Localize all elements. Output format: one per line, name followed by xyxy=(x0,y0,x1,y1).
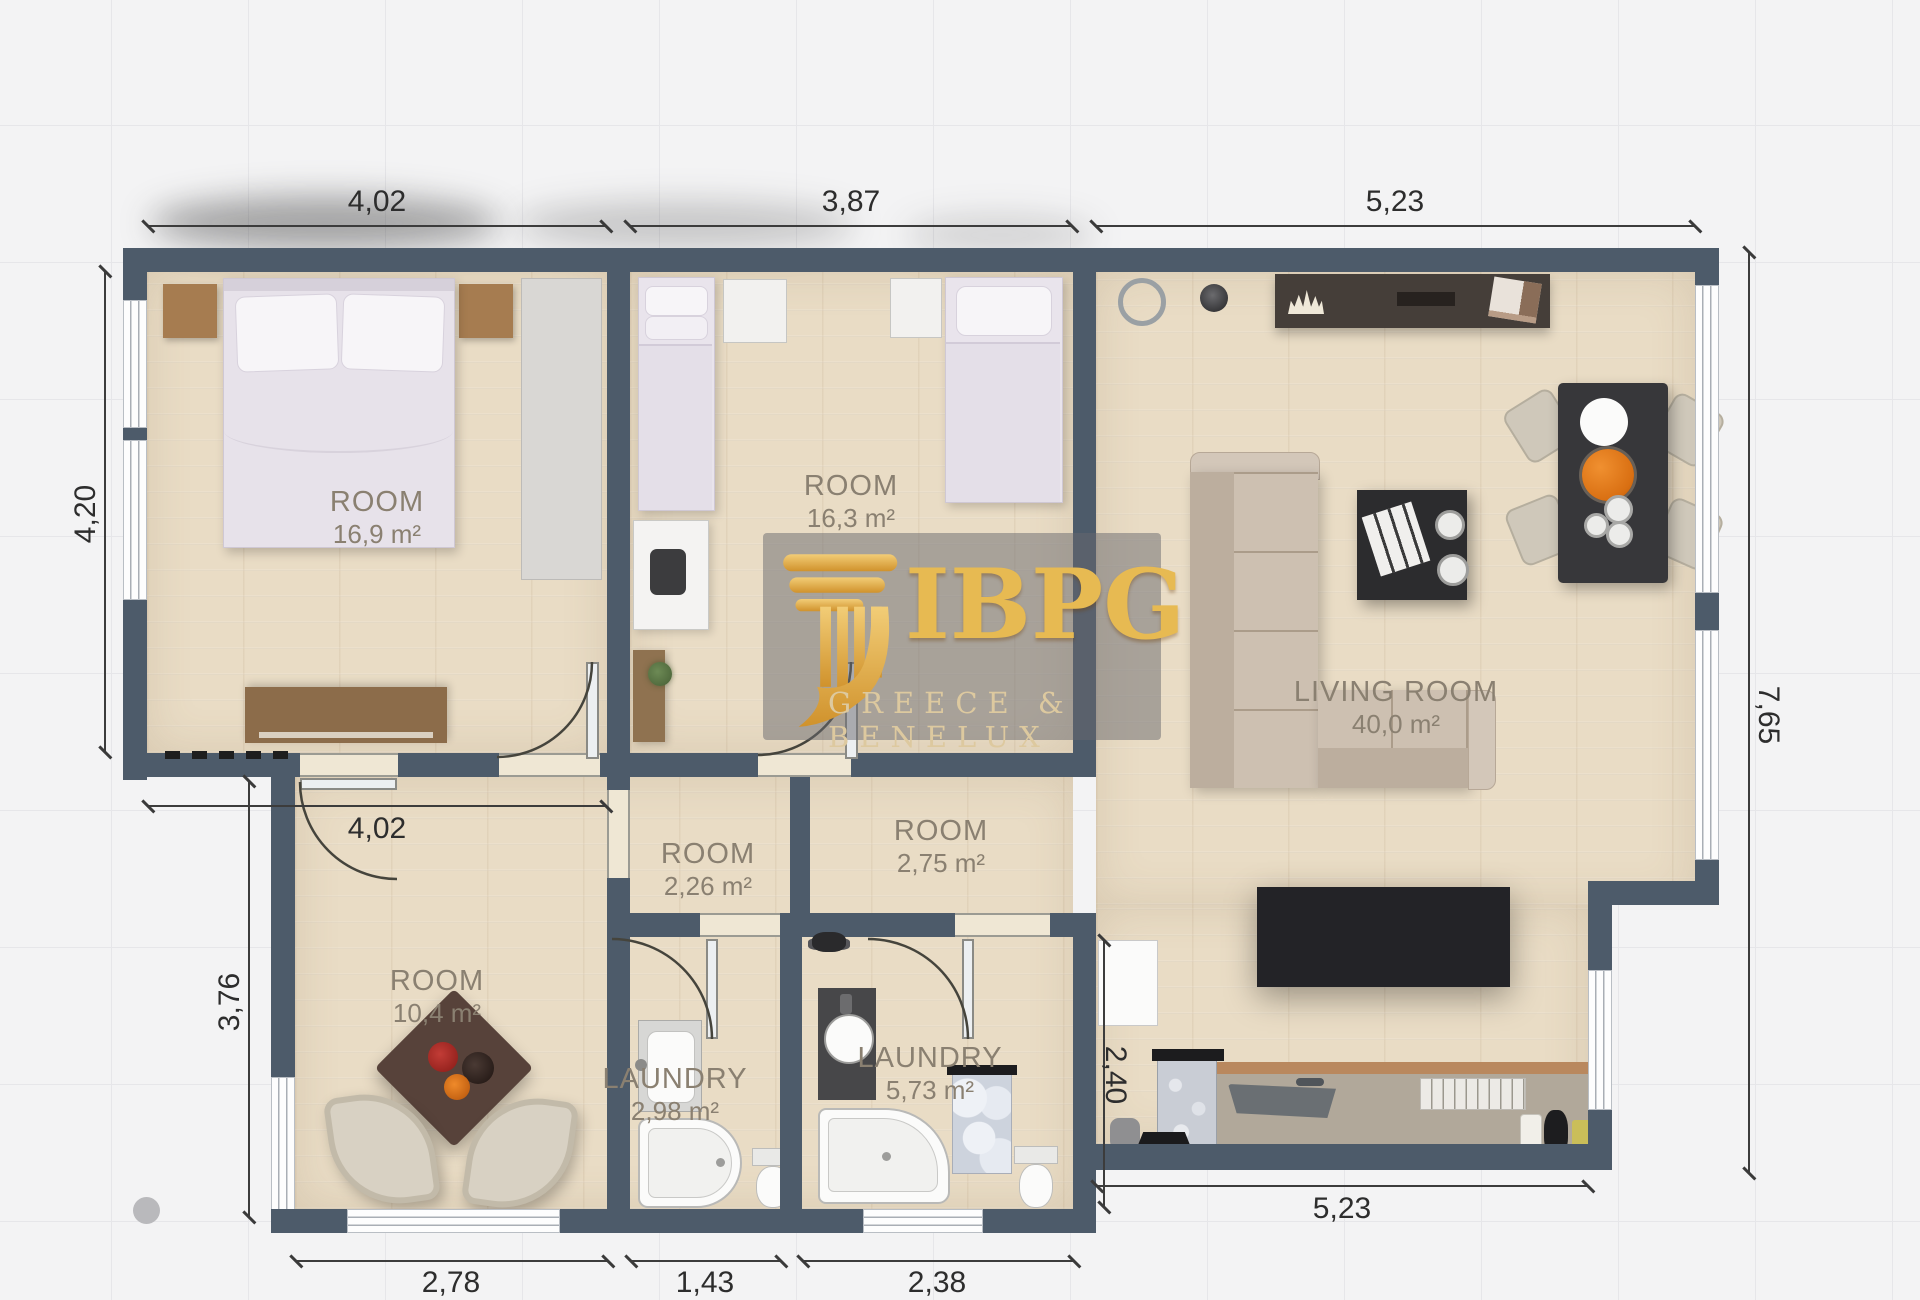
dimension-line xyxy=(630,225,1073,227)
room-label-living-room: LIVING ROOM 40,0 m² xyxy=(1286,676,1506,740)
room-label-sitting-room: ROOM 10,4 m² xyxy=(327,965,547,1029)
door-arc xyxy=(612,939,712,1039)
dimension-label: 7,65 xyxy=(1751,650,1785,780)
door-arc xyxy=(497,662,592,757)
dimension-line xyxy=(1748,253,1750,1174)
room-label-bedroom-1: ROOM 16,9 m² xyxy=(267,486,487,550)
dimension-label: 4,02 xyxy=(312,185,442,219)
room-name: ROOM xyxy=(598,838,818,871)
room-label-hall-small: ROOM 2,26 m² xyxy=(598,838,818,902)
dimension-line xyxy=(295,1260,607,1262)
room-name: LAUNDRY xyxy=(820,1042,1040,1075)
dimension-label: 4,20 xyxy=(69,449,103,579)
dimension-line xyxy=(147,805,607,807)
dimension-line xyxy=(1096,1185,1588,1187)
watermark-brand: IBPG xyxy=(905,548,1205,661)
dimension-line xyxy=(1096,225,1695,227)
dimension-line xyxy=(104,272,106,753)
dimension-label: 2,38 xyxy=(872,1266,1002,1300)
dimension-label: 3,76 xyxy=(213,937,247,1067)
room-area: 2,75 m² xyxy=(831,848,1051,879)
room-area: 2,98 m² xyxy=(565,1096,785,1127)
door-arc xyxy=(868,939,968,1039)
room-area: 2,26 m² xyxy=(598,871,818,902)
floor-plan-canvas: 4,02 3,87 5,23 4,20 3,76 7,65 4,02 2,40 … xyxy=(0,0,1920,1300)
dimension-label: 4,02 xyxy=(312,812,442,846)
room-area: 16,3 m² xyxy=(741,503,961,534)
room-label-laundry-large: LAUNDRY 5,73 m² xyxy=(820,1042,1040,1106)
dimension-label: 2,78 xyxy=(386,1266,516,1300)
dimension-label: 2,40 xyxy=(1098,1010,1132,1140)
dimension-label: 1,43 xyxy=(640,1266,770,1300)
room-name: ROOM xyxy=(741,470,961,503)
room-label-hall-large: ROOM 2,75 m² xyxy=(831,815,1051,879)
dimension-line xyxy=(802,1260,1073,1262)
room-name: LIVING ROOM xyxy=(1286,676,1506,709)
dimension-label: 5,23 xyxy=(1277,1192,1407,1226)
dimension-line xyxy=(630,1260,780,1262)
watermark-subtitle: GREECE & BENELUX xyxy=(828,686,1228,754)
dimension-line xyxy=(147,225,607,227)
room-area: 5,73 m² xyxy=(820,1075,1040,1106)
dimension-label: 5,23 xyxy=(1330,185,1460,219)
dimension-line xyxy=(248,782,250,1218)
room-name: ROOM xyxy=(327,965,547,998)
room-name: ROOM xyxy=(831,815,1051,848)
room-name: LAUNDRY xyxy=(565,1063,785,1096)
room-area: 10,4 m² xyxy=(327,998,547,1029)
room-area: 40,0 m² xyxy=(1286,709,1506,740)
dimension-label: 3,87 xyxy=(786,185,916,219)
room-area: 16,9 m² xyxy=(267,519,487,550)
room-label-bedroom-2: ROOM 16,3 m² xyxy=(741,470,961,534)
room-name: ROOM xyxy=(267,486,487,519)
room-label-laundry-small: LAUNDRY 2,98 m² xyxy=(565,1063,785,1127)
